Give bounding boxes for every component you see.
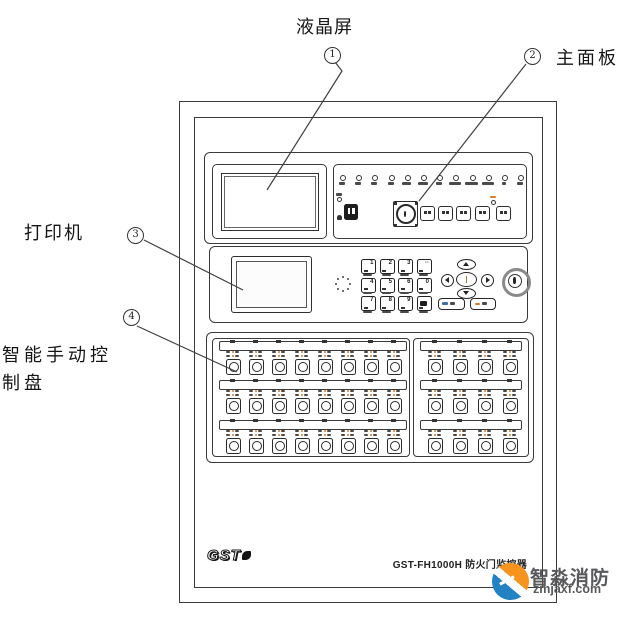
key-number: 1 xyxy=(370,260,373,266)
function-button[interactable] xyxy=(438,206,453,221)
door-control-button[interactable] xyxy=(226,359,241,375)
unit-led-label xyxy=(437,430,441,432)
unit-led-label xyxy=(512,390,516,392)
function-button[interactable] xyxy=(496,206,511,221)
strip-tab xyxy=(299,419,304,422)
key-number: 2 xyxy=(389,260,392,266)
key-label xyxy=(400,311,409,313)
button-glyph xyxy=(460,211,463,214)
unit-led-label xyxy=(364,394,368,396)
unit-led-label xyxy=(295,434,299,436)
strip-tab xyxy=(322,340,327,343)
button-ring xyxy=(275,401,285,411)
unit-led xyxy=(370,434,372,436)
unit-led-label xyxy=(327,394,331,396)
key-glyph xyxy=(419,270,423,272)
callout-3: 3 xyxy=(127,227,144,244)
unit-led-label xyxy=(364,434,368,436)
unit-led xyxy=(232,390,234,392)
key-number: 3 xyxy=(407,260,410,266)
label-manual-line1: 智能手动控 xyxy=(2,341,112,367)
unit-led xyxy=(370,390,372,392)
printer xyxy=(231,256,312,313)
door-control-button[interactable] xyxy=(387,398,402,414)
unit-led xyxy=(301,430,303,432)
unit-led xyxy=(347,430,349,432)
nav-down-button[interactable] xyxy=(457,288,476,299)
unit-led-label xyxy=(503,351,507,353)
delete-glyph xyxy=(420,301,427,306)
exit-button[interactable] xyxy=(470,298,496,310)
menu-label xyxy=(442,302,448,305)
watermark-domain: zmjaxf.com xyxy=(533,582,601,596)
door-control-button[interactable] xyxy=(318,438,333,454)
unit-led-label xyxy=(373,434,377,436)
door-control-button[interactable] xyxy=(453,398,468,414)
button-ring xyxy=(456,441,466,451)
unit-led-label xyxy=(396,434,400,436)
unit-led xyxy=(232,434,234,436)
unit-led xyxy=(278,430,280,432)
unit-led-label xyxy=(281,430,285,432)
speaker-dot xyxy=(349,283,351,285)
unit-led-label xyxy=(396,351,400,353)
keypad-key-9[interactable]: 9 xyxy=(398,296,413,311)
unit-led-label xyxy=(281,390,285,392)
strip-tab xyxy=(391,340,396,343)
main-key-switch[interactable] xyxy=(393,201,418,227)
door-control-button[interactable] xyxy=(503,398,518,414)
unit-led xyxy=(324,390,326,392)
unit-led-label xyxy=(364,355,368,357)
unit-led-label xyxy=(428,430,432,432)
unit-led-label xyxy=(341,394,345,396)
door-control-button[interactable] xyxy=(428,359,443,375)
button-ring xyxy=(344,441,354,451)
strip-tab xyxy=(482,379,487,382)
status-led xyxy=(502,175,508,181)
door-control-button[interactable] xyxy=(226,438,241,454)
indicator-label xyxy=(502,182,506,185)
keypad-key-6[interactable]: 6 xyxy=(398,278,413,293)
unit-led xyxy=(324,394,326,396)
door-control-button[interactable] xyxy=(453,359,468,375)
unit-led-label xyxy=(478,351,482,353)
strip-tab xyxy=(432,419,437,422)
indicator-label xyxy=(517,182,523,185)
unit-led-label xyxy=(327,430,331,432)
unit-led xyxy=(484,355,486,357)
unit-led-label xyxy=(428,434,432,436)
door-control-button[interactable] xyxy=(387,438,402,454)
key-label xyxy=(419,311,428,313)
main-panel-indicators xyxy=(334,165,526,189)
door-control-button[interactable] xyxy=(364,438,379,454)
unit-led-label xyxy=(249,355,253,357)
lcd-screen-inner xyxy=(224,176,316,228)
unit-led xyxy=(459,430,461,432)
key-glyph xyxy=(401,288,405,290)
printer-section-panel: 123··4560789 xyxy=(209,246,528,323)
strip-tab xyxy=(432,340,437,343)
key-glyph xyxy=(364,307,368,309)
unit-led-label xyxy=(272,351,276,353)
unit-led-label xyxy=(295,390,299,392)
unit-led-label xyxy=(235,351,239,353)
unit-led xyxy=(324,355,326,357)
unit-led-label xyxy=(318,390,322,392)
menu-label xyxy=(450,302,455,305)
callout-1: 1 xyxy=(324,47,341,64)
key-glyph xyxy=(382,307,386,309)
strip-tab xyxy=(276,419,281,422)
unit-led-label xyxy=(304,390,308,392)
door-control-button[interactable] xyxy=(272,398,287,414)
watermark-logo-icon xyxy=(492,563,529,600)
unit-led xyxy=(459,355,461,357)
button-ring xyxy=(506,441,516,451)
door-control-button[interactable] xyxy=(428,398,443,414)
status-led xyxy=(453,175,459,181)
door-control-button[interactable] xyxy=(272,438,287,454)
unit-led xyxy=(232,351,234,353)
unit-led-label xyxy=(437,390,441,392)
unit-led xyxy=(459,351,461,353)
unit-led-label xyxy=(258,390,262,392)
unit-led-label xyxy=(478,394,482,396)
panel-key-lock[interactable] xyxy=(502,268,531,297)
indicator-label xyxy=(436,182,442,185)
unit-led-label xyxy=(453,434,457,436)
lcd-panel xyxy=(212,164,327,239)
unit-led xyxy=(484,351,486,353)
door-control-button[interactable] xyxy=(341,359,356,375)
door-control-button[interactable] xyxy=(503,438,518,454)
status-led xyxy=(356,175,362,181)
keypad-key-4[interactable]: 4 xyxy=(361,278,376,293)
unit-led xyxy=(484,434,486,436)
door-control-button[interactable] xyxy=(503,359,518,375)
unit-led-label xyxy=(341,434,345,436)
unit-led-label xyxy=(226,351,230,353)
key-label xyxy=(363,292,372,294)
mute-label xyxy=(336,193,342,196)
button-ring xyxy=(298,441,308,451)
unit-led-label xyxy=(373,355,377,357)
button-ring xyxy=(367,401,377,411)
key-number: 8 xyxy=(389,297,392,303)
strip-tab xyxy=(432,379,437,382)
unit-led xyxy=(324,351,326,353)
status-led xyxy=(389,175,395,181)
strip-tab xyxy=(322,379,327,382)
unit-led-label xyxy=(428,355,432,357)
unit-led xyxy=(434,355,436,357)
strip-tab xyxy=(457,419,462,422)
unit-led-label xyxy=(387,355,391,357)
unit-led-label xyxy=(350,434,354,436)
unit-led-label xyxy=(350,394,354,396)
door-control-button[interactable] xyxy=(249,398,264,414)
unit-led-label xyxy=(462,351,466,353)
unit-led-label xyxy=(226,390,230,392)
door-control-button[interactable] xyxy=(478,359,493,375)
unit-led xyxy=(255,394,257,396)
screw xyxy=(394,224,397,227)
silence-icon xyxy=(348,208,351,214)
function-button[interactable] xyxy=(456,206,471,221)
unit-led-label xyxy=(350,355,354,357)
key-glyph xyxy=(364,288,368,290)
status-led xyxy=(470,175,476,181)
unit-led-label xyxy=(341,355,345,357)
door-control-button[interactable] xyxy=(364,359,379,375)
key-number: 7 xyxy=(370,297,373,303)
unit-led-label xyxy=(272,394,276,396)
unit-led-label xyxy=(295,355,299,357)
strip-tab xyxy=(253,340,258,343)
unit-led xyxy=(509,430,511,432)
key-label xyxy=(419,274,428,276)
unit-led xyxy=(459,434,461,436)
unit-led-label xyxy=(226,394,230,396)
strip-tab xyxy=(276,340,281,343)
unit-led-label xyxy=(235,434,239,436)
unit-led-label xyxy=(304,434,308,436)
unit-led-label xyxy=(512,351,516,353)
speaker-dot xyxy=(342,276,344,278)
up-arrow-icon xyxy=(463,262,469,266)
keypad-key-1[interactable]: 1 xyxy=(361,259,376,274)
label-strip xyxy=(219,380,407,390)
unit-led-label xyxy=(281,434,285,436)
key-glyph xyxy=(364,270,368,272)
button-ring xyxy=(481,362,491,372)
unit-led xyxy=(459,394,461,396)
unit-led-label xyxy=(295,430,299,432)
unit-led-label xyxy=(387,430,391,432)
door-control-button[interactable] xyxy=(341,438,356,454)
unit-led-label xyxy=(373,394,377,396)
door-control-button[interactable] xyxy=(478,438,493,454)
button-ring xyxy=(252,362,262,372)
indicator-label xyxy=(482,182,494,185)
button-ring xyxy=(321,441,331,451)
strip-tab xyxy=(253,379,258,382)
door-control-button[interactable] xyxy=(318,359,333,375)
nav-left-button[interactable] xyxy=(441,274,454,287)
key-label xyxy=(400,274,409,276)
label-manual-line2: 制盘 xyxy=(2,369,46,395)
door-control-button[interactable] xyxy=(249,438,264,454)
button-ring xyxy=(298,362,308,372)
unit-led-label xyxy=(396,394,400,396)
unit-led xyxy=(393,351,395,353)
unit-led-label xyxy=(487,434,491,436)
label-main-panel: 主面板 xyxy=(556,44,619,70)
strip-tab xyxy=(368,340,373,343)
keypad-key-8[interactable]: 8 xyxy=(380,296,395,311)
unit-led xyxy=(232,355,234,357)
key-label xyxy=(382,274,391,276)
unit-led xyxy=(301,351,303,353)
door-control-button[interactable] xyxy=(453,438,468,454)
unit-led-label xyxy=(396,390,400,392)
nav-right-button[interactable] xyxy=(481,274,494,287)
strip-tab xyxy=(345,379,350,382)
menu-button[interactable] xyxy=(438,298,465,310)
unit-led-label xyxy=(503,430,507,432)
unit-led xyxy=(278,394,280,396)
unit-led-label xyxy=(318,394,322,396)
unit-led xyxy=(484,394,486,396)
key-number: 6 xyxy=(407,279,410,285)
door-control-button[interactable] xyxy=(478,398,493,414)
main-control-panel xyxy=(333,164,527,239)
button-ring xyxy=(321,401,331,411)
unit-led-label xyxy=(235,355,239,357)
keypad-key-5[interactable]: 5 xyxy=(380,278,395,293)
keypad-key-◀[interactable] xyxy=(417,296,432,311)
key-label xyxy=(400,292,409,294)
door-control-button[interactable] xyxy=(295,359,310,375)
unit-led xyxy=(393,355,395,357)
unit-led xyxy=(301,394,303,396)
fn-led-label xyxy=(490,196,496,198)
button-ring xyxy=(390,401,400,411)
status-led xyxy=(405,175,411,181)
right-arrow-icon xyxy=(486,277,490,283)
button-ring xyxy=(252,441,262,451)
key-label xyxy=(363,311,372,313)
unit-led-label xyxy=(235,430,239,432)
speaker-dot xyxy=(342,290,344,292)
keypad-key-0[interactable]: 0 xyxy=(417,278,432,293)
unit-led-label xyxy=(387,351,391,353)
unit-led-label xyxy=(235,390,239,392)
unit-led xyxy=(255,390,257,392)
unit-led-label xyxy=(295,351,299,353)
unit-led-label xyxy=(428,394,432,396)
unit-led-label xyxy=(350,390,354,392)
unit-led-label xyxy=(478,434,482,436)
door-control-button[interactable] xyxy=(249,359,264,375)
unit-led-label xyxy=(437,351,441,353)
strip-tab xyxy=(276,379,281,382)
unit-led xyxy=(278,355,280,357)
nav-up-button[interactable] xyxy=(457,259,476,270)
key-label xyxy=(382,292,391,294)
key-number: ·· xyxy=(425,260,429,266)
button-glyph xyxy=(424,211,427,214)
button-ring xyxy=(229,362,239,372)
unit-led-label xyxy=(318,355,322,357)
indicator-label xyxy=(371,182,377,185)
unit-led-label xyxy=(487,390,491,392)
down-arrow-icon xyxy=(463,291,469,295)
button-glyph xyxy=(500,211,503,214)
unit-led-label xyxy=(272,430,276,432)
unit-led-label xyxy=(487,351,491,353)
key-glyph xyxy=(382,288,386,290)
nav-ok-button[interactable] xyxy=(456,272,477,288)
keypad-key-2[interactable]: 2 xyxy=(380,259,395,274)
unit-led-label xyxy=(487,394,491,396)
unit-led-label xyxy=(258,434,262,436)
indicator-label xyxy=(339,182,345,185)
key-number: 4 xyxy=(370,279,373,285)
function-button[interactable] xyxy=(475,206,490,221)
unit-led-label xyxy=(462,390,466,392)
unit-led xyxy=(434,394,436,396)
unit-led-label xyxy=(304,355,308,357)
unit-led xyxy=(484,390,486,392)
button-ring xyxy=(456,401,466,411)
key-label xyxy=(419,292,428,294)
unit-led-label xyxy=(249,434,253,436)
unit-led-label xyxy=(226,434,230,436)
unit-led-label xyxy=(373,390,377,392)
mute-led xyxy=(337,197,342,202)
door-control-button[interactable] xyxy=(295,398,310,414)
strip-tab xyxy=(507,419,512,422)
strip-tab xyxy=(299,379,304,382)
door-control-button[interactable] xyxy=(295,438,310,454)
door-control-button[interactable] xyxy=(364,398,379,414)
unit-led-label xyxy=(437,434,441,436)
button-ring xyxy=(456,362,466,372)
door-control-button[interactable] xyxy=(318,398,333,414)
unit-led-label xyxy=(304,430,308,432)
unit-led xyxy=(232,430,234,432)
label-strip xyxy=(420,341,522,351)
door-control-button[interactable] xyxy=(428,438,443,454)
key-glyph xyxy=(419,307,423,309)
unit-led xyxy=(509,351,511,353)
keypad-key-3[interactable]: 3 xyxy=(398,259,413,274)
door-control-button[interactable] xyxy=(341,398,356,414)
unit-led-label xyxy=(318,351,322,353)
function-button[interactable] xyxy=(420,206,435,221)
door-control-button[interactable] xyxy=(226,398,241,414)
unit-led xyxy=(393,394,395,396)
unit-led-label xyxy=(281,355,285,357)
button-ring xyxy=(431,401,441,411)
door-control-button[interactable] xyxy=(272,359,287,375)
door-control-button[interactable] xyxy=(387,359,402,375)
button-ring xyxy=(481,441,491,451)
unit-led-label xyxy=(373,351,377,353)
keypad-key-··[interactable]: ·· xyxy=(417,259,432,274)
button-glyph xyxy=(464,211,467,214)
unit-led-label xyxy=(462,355,466,357)
unit-led xyxy=(347,355,349,357)
exit-label xyxy=(475,303,480,305)
unit-led xyxy=(434,430,436,432)
unit-led-label xyxy=(258,394,262,396)
unit-led xyxy=(301,355,303,357)
unit-led-label xyxy=(327,434,331,436)
silence-button[interactable] xyxy=(344,204,358,220)
unit-led xyxy=(278,351,280,353)
key-slot xyxy=(404,211,406,218)
keypad-key-7[interactable]: 7 xyxy=(361,296,376,311)
strip-tab xyxy=(253,419,258,422)
unit-led xyxy=(434,434,436,436)
strip-tab xyxy=(230,419,235,422)
button-ring xyxy=(344,401,354,411)
speaker-dot xyxy=(347,288,349,290)
